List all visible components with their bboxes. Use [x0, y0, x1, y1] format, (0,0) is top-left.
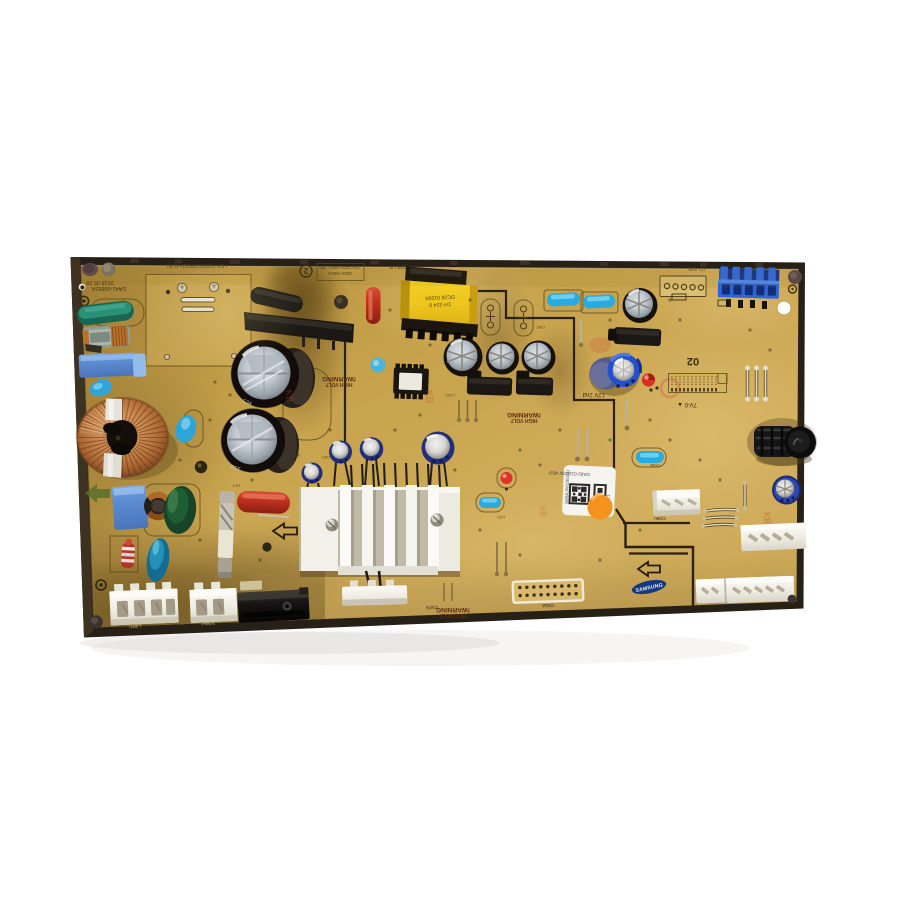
- svg-text:DY-224 0: DY-224 0: [429, 300, 451, 307]
- svg-text:FET: FET: [232, 483, 240, 488]
- svg-text:HIGH VOLT: HIGH VOLT: [440, 612, 467, 618]
- svg-text:CE3: CE3: [321, 455, 330, 460]
- svg-text:CN2A: CN2A: [706, 604, 718, 609]
- svg-text:LED: LED: [497, 515, 505, 520]
- svg-text:C101: C101: [445, 393, 455, 398]
- svg-text:!WARNING: !WARNING: [507, 411, 541, 418]
- svg-text:!WARNING: !WARNING: [436, 606, 470, 613]
- svg-text:SB: SB: [538, 505, 548, 517]
- svg-text:02: 02: [687, 355, 699, 367]
- svg-text:7V-0 ▲: 7V-0 ▲: [677, 401, 697, 407]
- svg-text:N(WH): N(WH): [201, 621, 215, 626]
- svg-text:12V 2nd: 12V 2nd: [583, 391, 605, 397]
- svg-text:HIGH VOLT: HIGH VOLT: [511, 417, 538, 423]
- svg-text:L(BN): L(BN): [129, 624, 141, 629]
- svg-text:CN76: CN76: [426, 605, 438, 610]
- svg-text:CN90: CN90: [654, 516, 666, 521]
- svg-text:KB: KB: [423, 390, 434, 404]
- svg-text:CN03: CN03: [758, 602, 770, 607]
- svg-text:CM2: CM2: [536, 325, 545, 330]
- svg-text:!WARNING: !WARNING: [322, 375, 356, 382]
- svg-text:KB: KB: [284, 390, 294, 402]
- svg-text:KB: KB: [762, 512, 772, 524]
- svg-text:CN5A: CN5A: [542, 603, 554, 608]
- svg-text:DA41-00863A: DA41-00863A: [91, 285, 126, 291]
- svg-text:HIGH VOLT: HIGH VOLT: [326, 381, 353, 387]
- svg-text:CN06: CN06: [649, 463, 660, 468]
